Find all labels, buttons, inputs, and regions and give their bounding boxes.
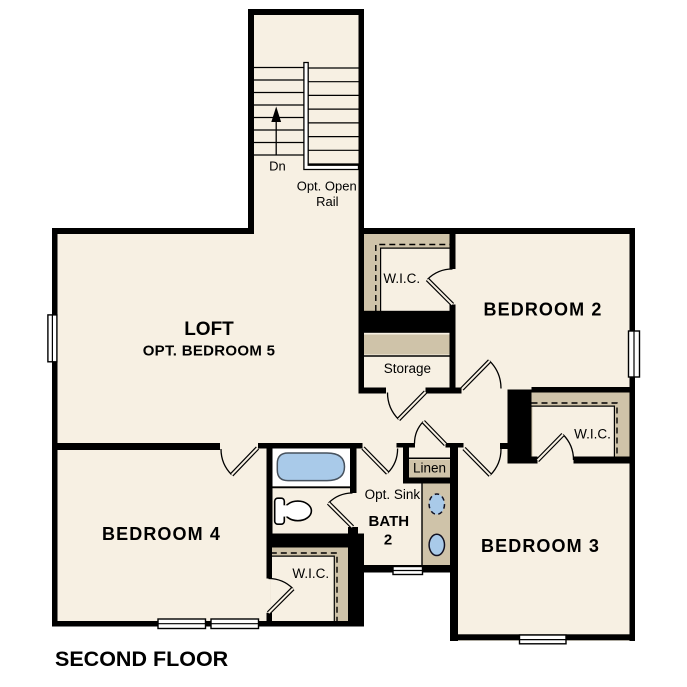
svg-text:BEDROOM 3: BEDROOM 3: [481, 536, 600, 556]
svg-text:Rail: Rail: [316, 194, 339, 209]
svg-text:2: 2: [384, 532, 392, 549]
svg-text:Opt. Open: Opt. Open: [297, 179, 357, 194]
svg-text:W.I.C.: W.I.C.: [292, 566, 329, 581]
svg-text:BATH: BATH: [369, 513, 410, 530]
svg-text:W.I.C.: W.I.C.: [574, 427, 611, 442]
svg-text:LOFT: LOFT: [184, 319, 234, 340]
svg-text:W.I.C.: W.I.C.: [383, 271, 420, 286]
svg-text:Dn: Dn: [269, 159, 286, 174]
svg-text:Linen: Linen: [413, 461, 446, 476]
svg-text:BEDROOM 2: BEDROOM 2: [484, 300, 603, 320]
svg-text:Opt. Sink: Opt. Sink: [365, 487, 421, 502]
svg-text:SECOND FLOOR: SECOND FLOOR: [55, 647, 229, 671]
svg-text:OPT. BEDROOM 5: OPT. BEDROOM 5: [143, 343, 276, 360]
svg-text:BEDROOM 4: BEDROOM 4: [102, 524, 221, 544]
svg-text:Storage: Storage: [384, 361, 431, 376]
